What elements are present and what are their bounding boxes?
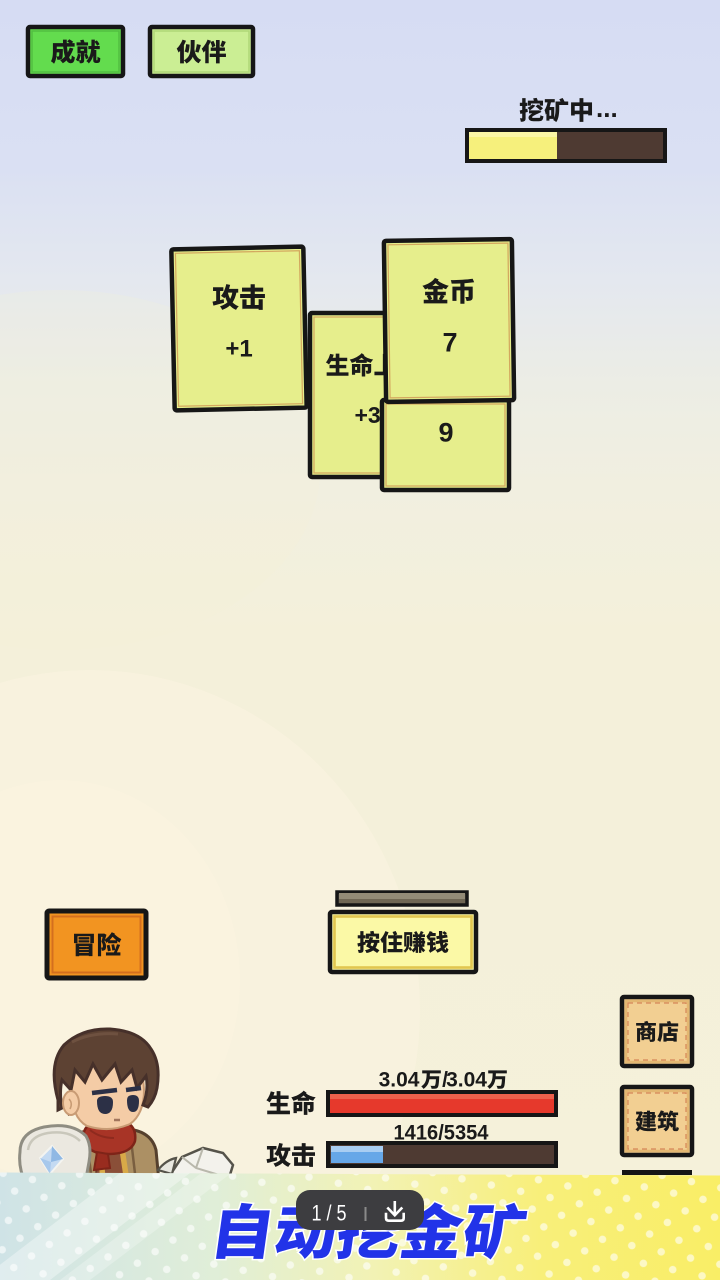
- svg-text:7: 7: [442, 328, 457, 358]
- svg-text:+1: +1: [225, 336, 252, 363]
- svg-text:1 / 5: 1 / 5: [312, 1200, 347, 1225]
- svg-text:...: ...: [596, 93, 618, 123]
- svg-text:3.04: 3.04: [446, 1069, 487, 1092]
- svg-text:9: 9: [438, 418, 453, 448]
- svg-text:3.04: 3.04: [379, 1069, 420, 1092]
